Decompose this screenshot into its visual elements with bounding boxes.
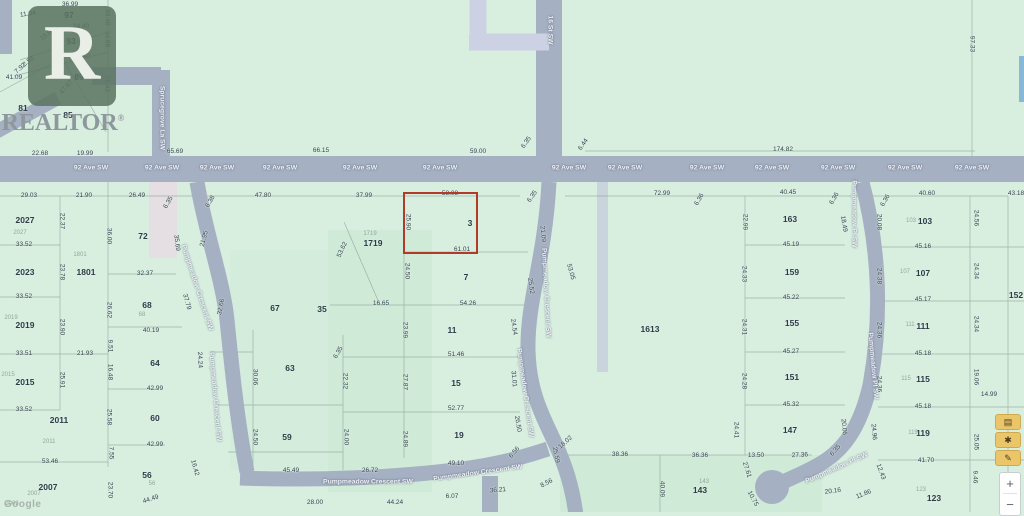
dimension-label: 45.18 <box>915 404 931 411</box>
road-label: 92 Ave SW <box>552 166 586 173</box>
dimension-label: 25.91 <box>58 372 65 388</box>
dimension-label: 24.50 <box>403 263 410 279</box>
gray-row-band <box>597 182 608 372</box>
dimension-label: 22.99 <box>741 214 748 230</box>
dimension-label: 72.99 <box>654 191 670 198</box>
road-pumpmeadow-crescent-center <box>528 182 576 512</box>
dimension-label: 24.38 <box>875 268 882 284</box>
dimension-label: 24.89 <box>401 431 408 447</box>
road-label: 92 Ave SW <box>423 166 457 173</box>
road-label: 92 Ave SW <box>145 166 179 173</box>
gray-lot-number: 107 <box>900 269 910 275</box>
road-label: 16 St SW <box>546 15 553 44</box>
dimension-label: 23.90 <box>58 319 65 335</box>
lot-number: 35 <box>317 305 326 314</box>
gray-lot-number: 1801 <box>73 252 86 258</box>
lot-number: 60 <box>150 414 159 423</box>
dimension-label: 25.58 <box>105 409 112 425</box>
dimension-label: 22.68 <box>32 151 48 158</box>
dimension-label: 37.99 <box>356 193 372 200</box>
gray-lot-number: 2027 <box>13 230 26 236</box>
dimension-label: 16.65 <box>373 301 389 308</box>
dimension-label: 24.33 <box>740 266 747 282</box>
gray-lot-number: 123 <box>916 487 926 493</box>
dimension-label: 24.31 <box>740 319 747 335</box>
lot-number: 147 <box>783 426 797 435</box>
lot-number: 151 <box>785 373 799 382</box>
gray-lot-number: 2019 <box>4 315 17 321</box>
gray-lot-number: 2011 <box>43 439 56 445</box>
dimension-label: 34.88 <box>103 31 110 47</box>
lot-number: 97 <box>64 11 73 20</box>
road-label: 92 Ave SW <box>821 166 855 173</box>
lot-number: 89 <box>74 73 83 82</box>
lot-number: 2011 <box>50 416 68 425</box>
gray-lot-number: 111 <box>905 322 914 328</box>
dimension-label: 21.90 <box>76 193 92 200</box>
dimension-label: 36.00 <box>105 228 112 244</box>
dimension-label: 51.46 <box>448 352 464 359</box>
dimension-label: 42.99 <box>147 386 163 393</box>
cul-de-sac-bulb <box>755 470 789 504</box>
road-label: 92 Ave SW <box>200 166 234 173</box>
dimension-label: 28.00 <box>307 500 323 507</box>
road-label: Pumpmeadow Pl SW <box>850 180 857 247</box>
lot-number: 2007 <box>39 483 58 492</box>
dimension-label: 40.19 <box>143 328 159 335</box>
dimension-label: 25.05 <box>972 434 979 450</box>
lot-number: 1613 <box>641 325 660 334</box>
dimension-label: 41.70 <box>918 458 934 465</box>
lot-number: 64 <box>150 359 159 368</box>
lot-number: 56 <box>142 471 151 480</box>
pencil-icon: ✎ <box>1004 453 1012 464</box>
zoom-in-button[interactable]: + <box>1000 473 1020 493</box>
dimension-label: 44.24 <box>387 500 403 507</box>
draw-tool-button[interactable]: ✎ <box>995 450 1021 466</box>
lot-number: 115 <box>916 375 930 384</box>
lot-number: 1719 <box>364 239 383 248</box>
dimension-label: 43.18 <box>1008 191 1024 198</box>
dimension-label: 16.48 <box>106 364 113 380</box>
layers-icon: ▤ <box>1004 417 1013 428</box>
dimension-label: 24.56 <box>972 210 979 226</box>
dimension-label: 36.36 <box>692 453 708 460</box>
dimension-label: 30.06 <box>251 369 258 385</box>
lot-number: 67 <box>270 304 279 313</box>
dimension-label: 23.78 <box>58 264 65 280</box>
gray-lot-number: 2015 <box>1 372 14 378</box>
dimension-label: 27.36 <box>792 452 809 459</box>
dimension-label: 29.42 <box>103 76 110 92</box>
gray-lot-number: 143 <box>699 479 709 485</box>
dimension-label: 45.27 <box>783 349 799 356</box>
dimension-label: 23.70 <box>106 482 113 498</box>
gray-lot-number: 1719 <box>363 231 376 237</box>
layers-tool-button[interactable]: ▤ <box>995 414 1021 430</box>
dimension-label: 34.40 <box>73 24 89 31</box>
dimension-label: 45.19 <box>783 242 799 249</box>
dimension-label: 66.15 <box>313 148 329 155</box>
lot-number: 59 <box>282 433 291 442</box>
dimension-label: 9.46 <box>971 471 978 484</box>
lot-number: 2019 <box>16 321 35 330</box>
dimension-label: 26.72 <box>362 468 378 475</box>
dimension-label: 19.99 <box>77 151 93 158</box>
road-label: Sprucegrove La SW <box>158 86 165 150</box>
road-pumpmeadow-place <box>785 182 878 481</box>
lot-number: 103 <box>918 217 932 226</box>
road-topleft-diagonal <box>0 98 58 133</box>
dimension-label: 33.51 <box>16 351 32 358</box>
gray-lot-number: 56 <box>149 481 156 487</box>
dimension-label: 14.99 <box>981 392 997 399</box>
dimension-label: 20.06 <box>839 419 847 436</box>
lot-number: 159 <box>785 268 799 277</box>
map-canvas[interactable]: 36.9911.0434.4030.4815.0634.8834.402.937… <box>0 0 1024 512</box>
dimension-label: 40.60 <box>919 191 935 198</box>
road-label: Pumpmeadow Crescent SW <box>323 480 413 487</box>
lot-number: 143 <box>693 486 707 495</box>
dimension-label: 22.32 <box>341 373 348 389</box>
shape-icon: ✱ <box>1004 435 1012 446</box>
lot-number: 72 <box>138 232 147 241</box>
dimension-label: 47.80 <box>255 193 271 200</box>
blue-sliver <box>1019 56 1024 102</box>
dimension-label: 18.49 <box>838 215 847 232</box>
road-label: 92 Ave SW <box>343 166 377 173</box>
lot-number: 163 <box>783 215 797 224</box>
dimension-label: 21.09 <box>538 226 546 243</box>
lot-number: 2027 <box>16 216 35 225</box>
dimension-label: 29.03 <box>21 193 37 200</box>
lot-number: 68 <box>142 301 151 310</box>
lot-number: 155 <box>785 319 799 328</box>
gray-lot-number: 119 <box>908 430 918 436</box>
dimension-label: 13.50 <box>748 453 764 460</box>
dimension-label: 45.17 <box>915 297 931 304</box>
dimension-label: 9.51 <box>106 340 113 353</box>
dimension-label: 24.00 <box>342 429 349 445</box>
dimension-label: 45.18 <box>915 351 931 358</box>
dimension-label: 65.69 <box>167 149 183 156</box>
road-label: 92 Ave SW <box>755 166 789 173</box>
dimension-label: 19.06 <box>972 369 979 385</box>
lot-number: 123 <box>927 494 941 503</box>
dimension-label: 45.16 <box>915 244 931 251</box>
dimension-label: 24.34 <box>972 263 979 279</box>
dimension-label: 54.26 <box>460 301 476 308</box>
lot-number: 85 <box>63 111 72 120</box>
dimension-label: 33.52 <box>16 407 32 414</box>
zoom-control: + − <box>999 472 1021 516</box>
google-watermark: Google <box>4 499 41 510</box>
lot-number: 81 <box>18 104 27 113</box>
dimension-label: 20.08 <box>875 214 882 230</box>
lot-number: 2023 <box>16 268 35 277</box>
road-label: 92 Ave SW <box>690 166 724 173</box>
gray-lot-number: 2007 <box>27 491 40 497</box>
lot-number: 107 <box>916 269 930 278</box>
dimension-label: 24.34 <box>972 316 979 332</box>
dimension-label: 40.45 <box>780 190 796 197</box>
dimension-label: 53.46 <box>42 459 58 466</box>
dimension-label: 52.77 <box>448 406 464 413</box>
dimension-label: 45.49 <box>283 468 299 475</box>
dimension-label: 97.33 <box>968 36 975 52</box>
dimension-label: 36.99 <box>62 2 78 9</box>
dimension-label: 49.10 <box>448 461 464 468</box>
dimension-label: 33.52 <box>16 242 32 249</box>
lot-number: 19 <box>454 431 463 440</box>
dimension-label: 24.50 <box>251 429 258 445</box>
highlighted-parcel[interactable] <box>403 192 478 254</box>
shape-tool-button[interactable]: ✱ <box>995 432 1021 448</box>
dimension-label: 33.52 <box>16 294 32 301</box>
road-label: 92 Ave SW <box>263 166 297 173</box>
lot-number: 152 <box>1009 291 1023 300</box>
lot-number: 93 <box>66 37 75 46</box>
dimension-label: 24.41 <box>732 422 739 438</box>
lot-number: 15 <box>451 379 460 388</box>
zoom-out-button[interactable]: − <box>1000 494 1020 514</box>
lot-number: 2015 <box>16 378 35 387</box>
dimension-label: 59.00 <box>470 149 486 156</box>
dimension-label: 6.07 <box>446 494 459 501</box>
dimension-label: 45.22 <box>783 295 799 302</box>
dimension-label: 42.99 <box>147 442 163 449</box>
dimension-label: 24.24 <box>195 352 202 369</box>
dimension-label: 30.48 <box>103 9 110 25</box>
dimension-label: 31.01 <box>509 371 517 388</box>
dimension-label: 25.52 <box>526 277 535 294</box>
dimension-label: 41.09 <box>6 75 22 82</box>
dimension-label: 26.62 <box>105 302 112 318</box>
road-label: 92 Ave SW <box>888 166 922 173</box>
lot-number: 111 <box>916 322 929 331</box>
lot-number: 7 <box>464 273 469 282</box>
dimension-label: 24.54 <box>509 318 518 335</box>
dimension-label: 34.40 <box>74 54 90 61</box>
dimension-label: 24.36 <box>875 322 882 338</box>
dimension-label: 7.55 <box>107 447 114 460</box>
dimension-label: 24.28 <box>740 373 747 389</box>
dimension-label: 26.49 <box>129 193 145 200</box>
road-label: 92 Ave SW <box>955 166 989 173</box>
gray-lot-number: 115 <box>901 376 911 382</box>
road-label: 92 Ave SW <box>74 166 108 173</box>
dimension-label: 32.37 <box>137 271 153 278</box>
lot-number: 63 <box>285 364 294 373</box>
dimension-label: 27.87 <box>401 374 408 390</box>
dimension-label: 45.32 <box>783 402 799 409</box>
lot-number: 11 <box>448 326 457 335</box>
dimension-label: 22.37 <box>58 213 65 229</box>
lot-number: 1801 <box>77 268 96 277</box>
dimension-label: 26.50 <box>512 415 521 432</box>
gray-lot-number: 68 <box>139 312 146 318</box>
gray-lot-number: 103 <box>906 218 916 224</box>
dimension-label: 21.93 <box>77 351 93 358</box>
map-tools: ▤ ✱ ✎ <box>995 414 1022 468</box>
dimension-label: 38.36 <box>612 452 628 459</box>
dimension-label: 23.99 <box>401 322 408 338</box>
dimension-label: 174.82 <box>773 147 793 154</box>
dimension-label: 24.96 <box>869 424 877 441</box>
road-label: 92 Ave SW <box>608 166 642 173</box>
dimension-label: 40.09 <box>658 481 665 497</box>
